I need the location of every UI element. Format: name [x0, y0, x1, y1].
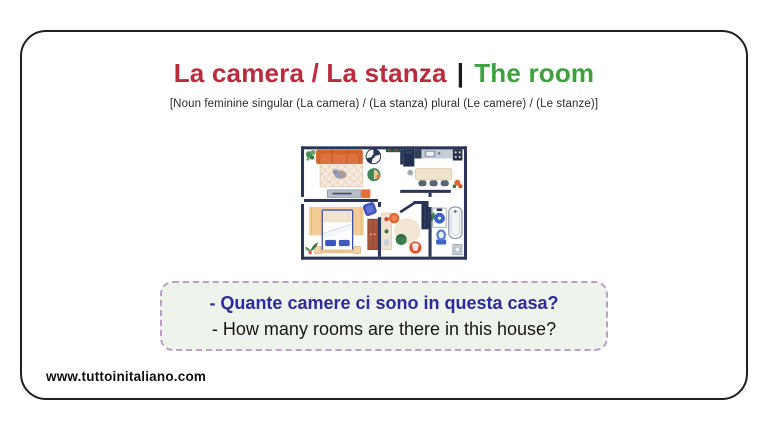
title-english: The room — [474, 58, 594, 88]
fan-table-icon — [366, 149, 381, 164]
pouf-icon — [396, 234, 407, 245]
bathtub-icon — [449, 207, 462, 238]
bed-icon — [321, 210, 353, 253]
tub-chair-icon — [409, 241, 421, 253]
floor-plan-illustration — [301, 146, 467, 260]
website-url: www.tuttoinitaliano.com — [46, 369, 206, 384]
sofa-icon — [316, 150, 363, 164]
grammar-note: [Noun feminine singular (La camera) / (L… — [22, 98, 746, 110]
title-italian: La camera / La stanza — [174, 58, 447, 88]
floor-plan-svg — [301, 146, 467, 260]
page-title: La camera / La stanza|The room — [22, 58, 746, 89]
question-italian: - Quante camere ci sono in questa casa? — [174, 290, 594, 316]
stove-icon — [453, 149, 463, 160]
wardrobe-icon — [368, 219, 378, 249]
dining-table-icon — [415, 169, 451, 187]
question-english: - How many rooms are there in this house… — [174, 316, 594, 342]
title-separator: | — [457, 58, 464, 88]
slide-card: La camera / La stanza|The room [Noun fem… — [20, 30, 748, 400]
counter-icon — [414, 149, 452, 158]
washer-icon — [453, 245, 462, 255]
question-box: - Quante camere ci sono in questa casa? … — [160, 281, 608, 351]
sink-icon — [433, 208, 447, 227]
armchair-icon — [367, 168, 380, 181]
toilet-icon — [436, 229, 446, 244]
tv-console-icon — [327, 189, 370, 198]
nightstand-icon — [354, 247, 361, 254]
